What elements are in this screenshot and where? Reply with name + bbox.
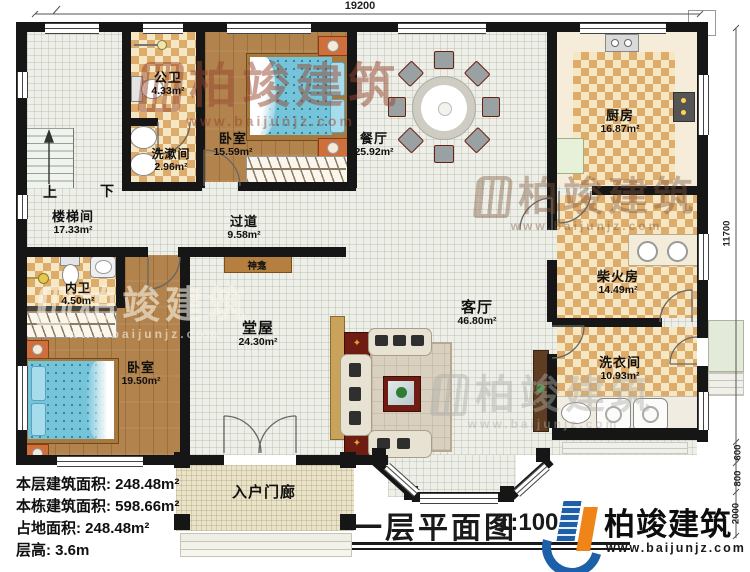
- dim-right: 11700: [722, 212, 733, 256]
- door-arc: [670, 337, 697, 364]
- room-label-loutijian: 楼梯间 17.33m²: [52, 210, 94, 236]
- watermark-text: 柏竣建筑: [518, 177, 698, 217]
- brand-name: 柏竣建筑: [604, 499, 732, 544]
- room-name: 洗衣间: [599, 356, 641, 370]
- room-label-neiwei: 内卫 4.50m²: [61, 281, 94, 307]
- room-name: 卧室: [213, 132, 252, 146]
- room-name: 公卫: [151, 71, 184, 85]
- room-name: 洗漱间: [151, 147, 190, 161]
- brand-website: www.baijunjz.com: [606, 541, 746, 555]
- room-name: 厨房: [600, 109, 639, 123]
- room-label-canting: 餐厅 25.92m²: [354, 132, 393, 158]
- room-label-rumenlang: 入户门廊: [232, 486, 296, 500]
- room-name: 入户门廊: [232, 486, 296, 500]
- room-label-woshi2: 卧室 19.50m²: [121, 361, 160, 387]
- door-arc: [259, 416, 296, 453]
- stairs-direction: [45, 131, 53, 184]
- room-area: 14.49m²: [597, 284, 639, 296]
- watermark-site: www.baijunjz.com: [140, 114, 401, 128]
- room-name: 柴火房: [597, 270, 639, 284]
- door-arc: [224, 416, 261, 453]
- room-label-xiyijian: 洗衣间 10.93m²: [599, 356, 641, 382]
- room-name: 堂屋: [238, 322, 277, 336]
- watermark: 柏竣建筑 www.baijunjz.com: [475, 176, 698, 232]
- brand-logo: [540, 497, 602, 563]
- room-name: 过道: [227, 215, 260, 229]
- room-area: 24.30m²: [238, 336, 277, 348]
- watermark-site: www.baijunjz.com: [475, 220, 698, 232]
- dim-seg-800: 800: [733, 462, 744, 496]
- stairs-up-label: 上: [43, 182, 57, 202]
- door-arc: [552, 326, 584, 358]
- watermark-logo-icon: [430, 374, 470, 416]
- watermark: 柏竣建筑 www.baijunjz.com: [432, 374, 655, 430]
- room-area: 15.59m²: [213, 146, 252, 158]
- room-area: 46.80m²: [457, 315, 496, 327]
- room-area: 4.50m²: [61, 295, 94, 307]
- room-label-xishujian: 洗漱间 2.96m²: [151, 147, 190, 173]
- stats-block: 本层建筑面积: 248.48m² 本栋建筑面积: 598.66m² 占地面积: …: [16, 474, 179, 562]
- stats-line: 本层建筑面积: 248.48m²: [16, 474, 179, 496]
- room-area: 17.33m²: [52, 224, 94, 236]
- shrine-label: 神龛: [247, 258, 266, 272]
- room-label-chaihuofang: 柴火房 14.49m²: [597, 270, 639, 296]
- room-name: 客厅: [457, 301, 496, 315]
- room-area: 10.93m²: [599, 370, 641, 382]
- dim-tick: [53, 6, 60, 14]
- room-area: 2.96m²: [151, 161, 190, 173]
- watermark-site: www.baijunjz.com: [38, 328, 251, 340]
- room-name: 卧室: [121, 361, 160, 375]
- dim-top: 19200: [338, 0, 382, 12]
- plan-title: 一层平面图: [352, 503, 517, 547]
- room-area: 9.58m²: [227, 229, 260, 241]
- room-area: 19.50m²: [121, 375, 160, 387]
- room-name: 楼梯间: [52, 210, 94, 224]
- room-label-guodao: 过道 9.58m²: [227, 215, 260, 241]
- room-label-tangwu: 堂屋 24.30m²: [238, 322, 277, 348]
- stats-line: 层高: 3.6m: [16, 540, 179, 562]
- watermark-text: 柏竣建筑: [79, 287, 251, 325]
- room-area: 16.87m²: [600, 123, 639, 135]
- room-name: 内卫: [61, 281, 94, 295]
- room-label-woshi1: 卧室 15.59m²: [213, 132, 252, 158]
- floor-plan-canvas: ✦ ✦: [0, 0, 750, 572]
- room-area: 4.33m²: [151, 85, 184, 97]
- stats-line: 本栋建筑面积: 598.66m²: [16, 496, 179, 518]
- room-name: 餐厅: [354, 132, 393, 146]
- room-label-chufang: 厨房 16.87m²: [600, 109, 639, 135]
- door-arc: [660, 290, 692, 322]
- stairs-arrow-head: [45, 131, 53, 142]
- watermark-text: 柏竣建筑: [189, 63, 401, 111]
- room-label-keting: 客厅 46.80m²: [457, 301, 496, 327]
- dim-seg-2000: 2000: [731, 497, 742, 531]
- stairs-down-label: 下: [100, 181, 114, 201]
- room-area: 25.92m²: [354, 146, 393, 158]
- room-label-gongwei: 公卫 4.33m²: [151, 71, 184, 97]
- watermark-site: www.baijunjz.com: [432, 418, 655, 430]
- stats-line: 占地面积: 248.48m²: [16, 518, 179, 540]
- watermark-logo-icon: [473, 176, 513, 218]
